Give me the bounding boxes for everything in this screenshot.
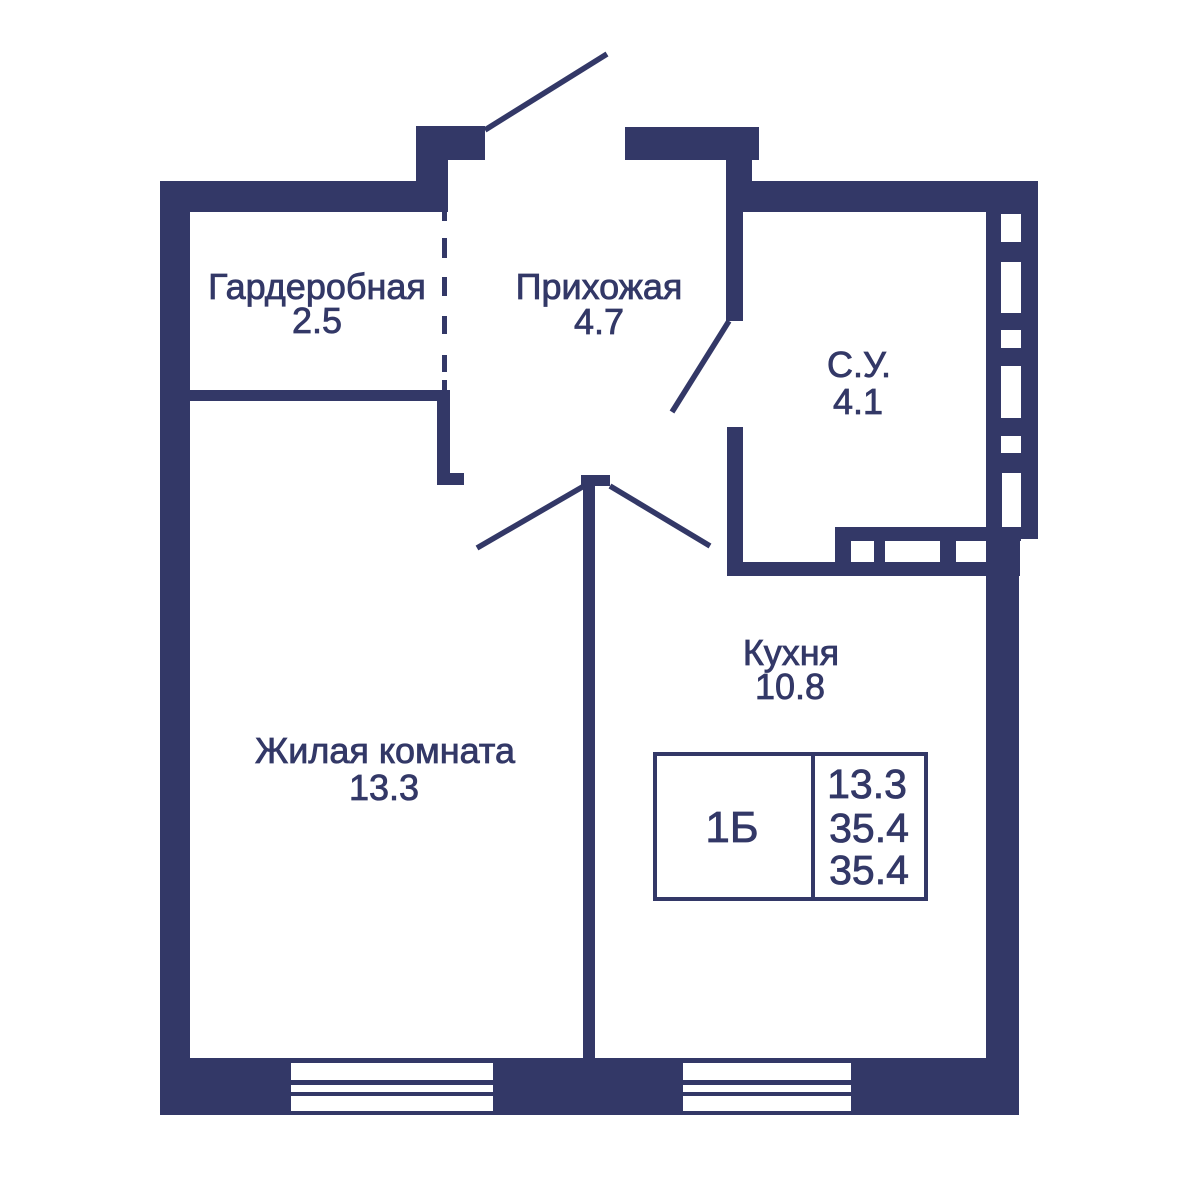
svg-text:Жилая комната: Жилая комната <box>255 730 516 771</box>
svg-text:2.5: 2.5 <box>292 300 342 341</box>
svg-text:4.1: 4.1 <box>833 381 883 422</box>
svg-text:35.4: 35.4 <box>829 847 909 893</box>
svg-text:35.4: 35.4 <box>829 805 909 851</box>
svg-text:С.У.: С.У. <box>827 344 891 385</box>
svg-text:13.3: 13.3 <box>827 761 907 807</box>
svg-text:1Б: 1Б <box>705 803 758 852</box>
svg-text:4.7: 4.7 <box>574 301 624 342</box>
svg-text:10.8: 10.8 <box>755 666 825 707</box>
svg-text:13.3: 13.3 <box>349 767 419 808</box>
